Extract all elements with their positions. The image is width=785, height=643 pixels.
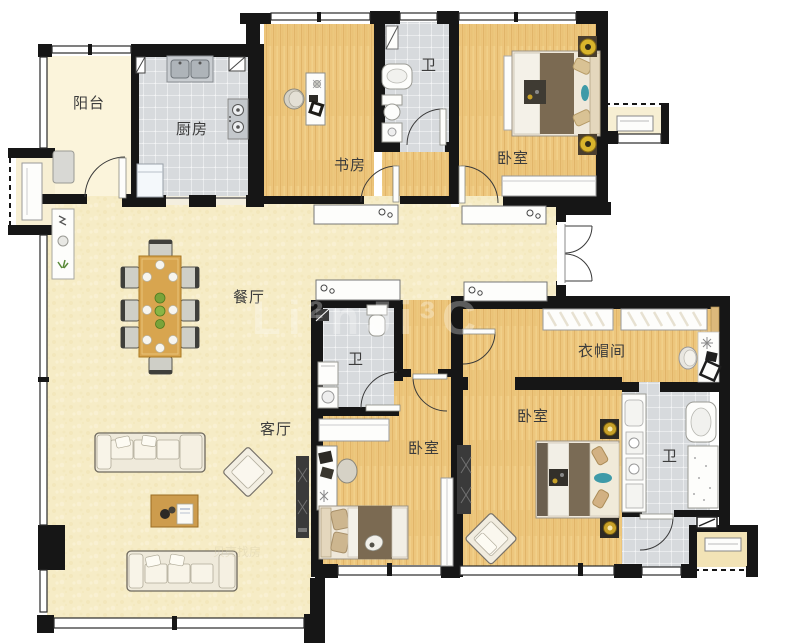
svg-text:卫: 卫 [421, 57, 437, 74]
svg-text:卫: 卫 [662, 448, 678, 465]
svg-text:贝壳找房: 贝壳找房 [213, 544, 261, 559]
svg-text:阳台: 阳台 [73, 95, 105, 112]
svg-text:卧室: 卧室 [408, 440, 440, 457]
svg-text:Li²nJi³C: Li²nJi³C [252, 291, 483, 344]
svg-text:卧室: 卧室 [517, 408, 549, 425]
svg-text:客厅: 客厅 [260, 421, 292, 438]
svg-text:卧室: 卧室 [497, 150, 529, 167]
svg-text:卫: 卫 [348, 351, 364, 368]
svg-text:书房: 书房 [334, 157, 366, 174]
svg-text:衣帽间: 衣帽间 [578, 343, 626, 360]
svg-text:厨房: 厨房 [176, 121, 208, 138]
